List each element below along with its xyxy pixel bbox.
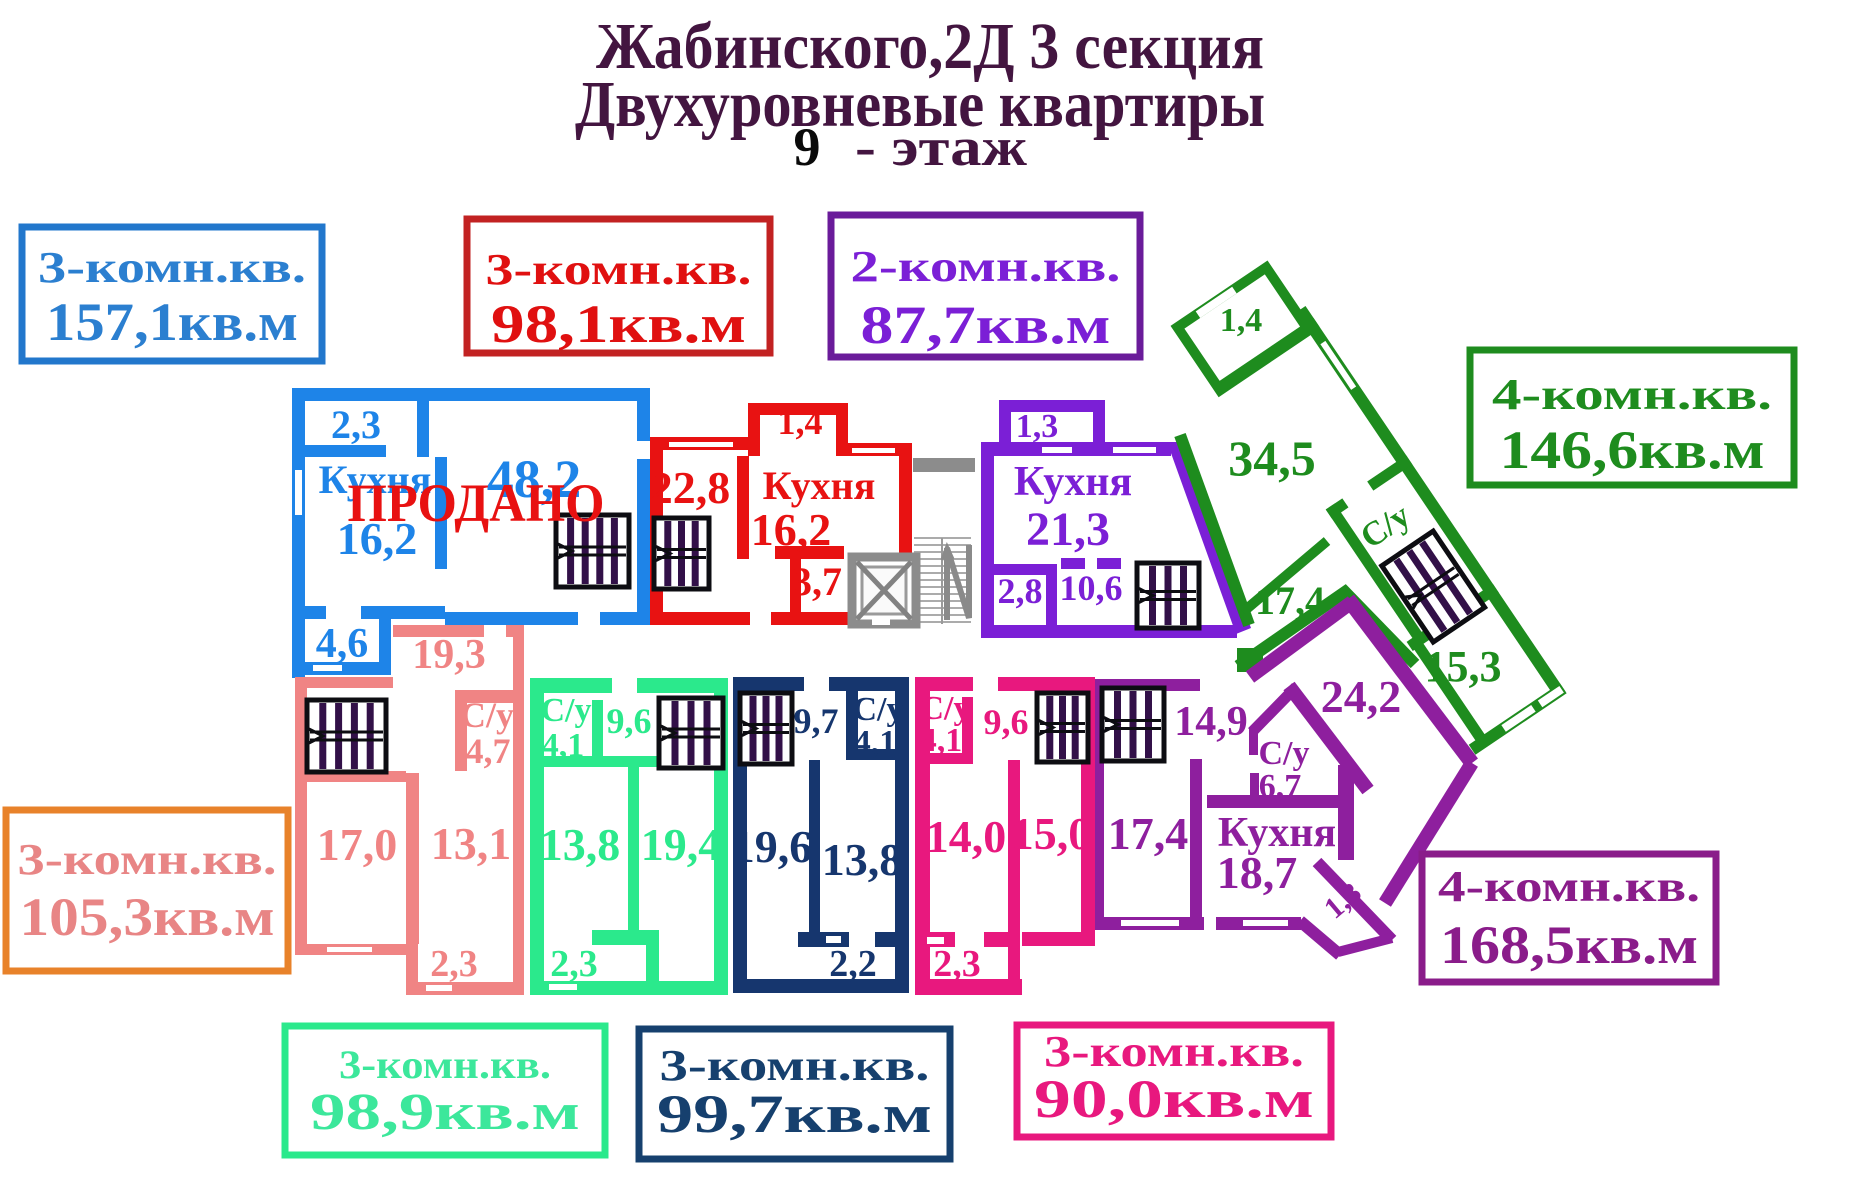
svg-text:2,3: 2,3 [430,943,478,985]
svg-text:22,8: 22,8 [650,462,731,513]
svg-text:Кухня: Кухня [1014,459,1132,505]
svg-text:19,4: 19,4 [641,819,722,870]
svg-text:3-комн.кв.: 3-комн.кв. [38,243,306,292]
svg-text:9: 9 [794,117,821,177]
svg-text:2,3: 2,3 [550,943,598,985]
svg-text:3-комн.кв.: 3-комн.кв. [18,835,277,884]
svg-text:19,3: 19,3 [412,632,486,678]
svg-text:17,4: 17,4 [1108,808,1189,859]
svg-text:105,3кв.м: 105,3кв.м [20,887,275,947]
svg-text:10,6: 10,6 [1060,568,1123,608]
svg-text:15,0: 15,0 [1011,808,1092,859]
svg-text:2-комн.кв.: 2-комн.кв. [851,242,1121,291]
svg-text:13,1: 13,1 [431,818,512,869]
svg-text:19,6: 19,6 [732,821,813,872]
svg-text:ПРОДАНО: ПРОДАНО [348,473,605,533]
svg-text:15,3: 15,3 [1425,642,1502,691]
svg-text:С/у: С/у [1259,735,1310,772]
svg-text:18,7: 18,7 [1217,847,1298,898]
svg-text:3-комн.кв.: 3-комн.кв. [339,1042,551,1087]
svg-text:98,1кв.м: 98,1кв.м [491,294,746,354]
svg-text:1,4: 1,4 [1220,302,1263,339]
svg-text:157,1кв.м: 157,1кв.м [46,292,298,352]
svg-text:С/у: С/у [541,692,592,729]
svg-text:17,0: 17,0 [317,819,398,870]
svg-text:3,7: 3,7 [792,559,842,604]
svg-text:С/у: С/у [460,695,514,735]
svg-text:6,7: 6,7 [1259,768,1302,805]
svg-text:13,8: 13,8 [540,819,621,870]
svg-text:9,6: 9,6 [984,702,1029,742]
svg-text:14,0: 14,0 [926,811,1007,862]
svg-text:4,1: 4,1 [542,727,585,764]
svg-text:16,2: 16,2 [751,504,832,555]
svg-text:24,2: 24,2 [1321,671,1402,722]
svg-text:4,1: 4,1 [920,722,963,759]
svg-text:4,7: 4,7 [466,731,511,771]
svg-text:21,3: 21,3 [1026,503,1110,556]
svg-text:90,0кв.м: 90,0кв.м [1034,1069,1314,1129]
svg-text:146,6кв.м: 146,6кв.м [1500,420,1765,480]
svg-text:2,2: 2,2 [829,943,877,985]
svg-text:- этаж: - этаж [855,117,1028,177]
svg-text:98,9кв.м: 98,9кв.м [310,1084,580,1141]
svg-text:2,8: 2,8 [998,571,1043,611]
svg-text:4-комн.кв.: 4-комн.кв. [1438,862,1700,911]
svg-text:9,7: 9,7 [794,701,839,741]
svg-text:168,5кв.м: 168,5кв.м [1440,915,1698,975]
svg-text:14,9: 14,9 [1174,699,1248,745]
svg-text:2,3: 2,3 [933,943,981,985]
svg-text:9,6: 9,6 [607,701,652,741]
svg-text:17,4: 17,4 [1255,578,1325,623]
svg-text:С/у: С/у [853,691,904,728]
svg-text:Кухня: Кухня [763,463,876,508]
svg-text:3-комн.кв.: 3-комн.кв. [660,1041,930,1090]
svg-text:2,3: 2,3 [331,402,381,447]
svg-text:99,7кв.м: 99,7кв.м [657,1084,932,1144]
svg-text:4-комн.кв.: 4-комн.кв. [1492,370,1772,419]
svg-text:3-комн.кв.: 3-комн.кв. [486,245,752,294]
svg-text:1,3: 1,3 [1016,408,1059,445]
svg-text:13,8: 13,8 [822,834,903,885]
svg-text:4,6: 4,6 [316,621,369,667]
svg-text:87,7кв.м: 87,7кв.м [861,295,1111,355]
svg-text:1,4: 1,4 [778,402,823,442]
svg-text:34,5: 34,5 [1228,430,1316,486]
svg-text:4,1: 4,1 [854,724,897,761]
